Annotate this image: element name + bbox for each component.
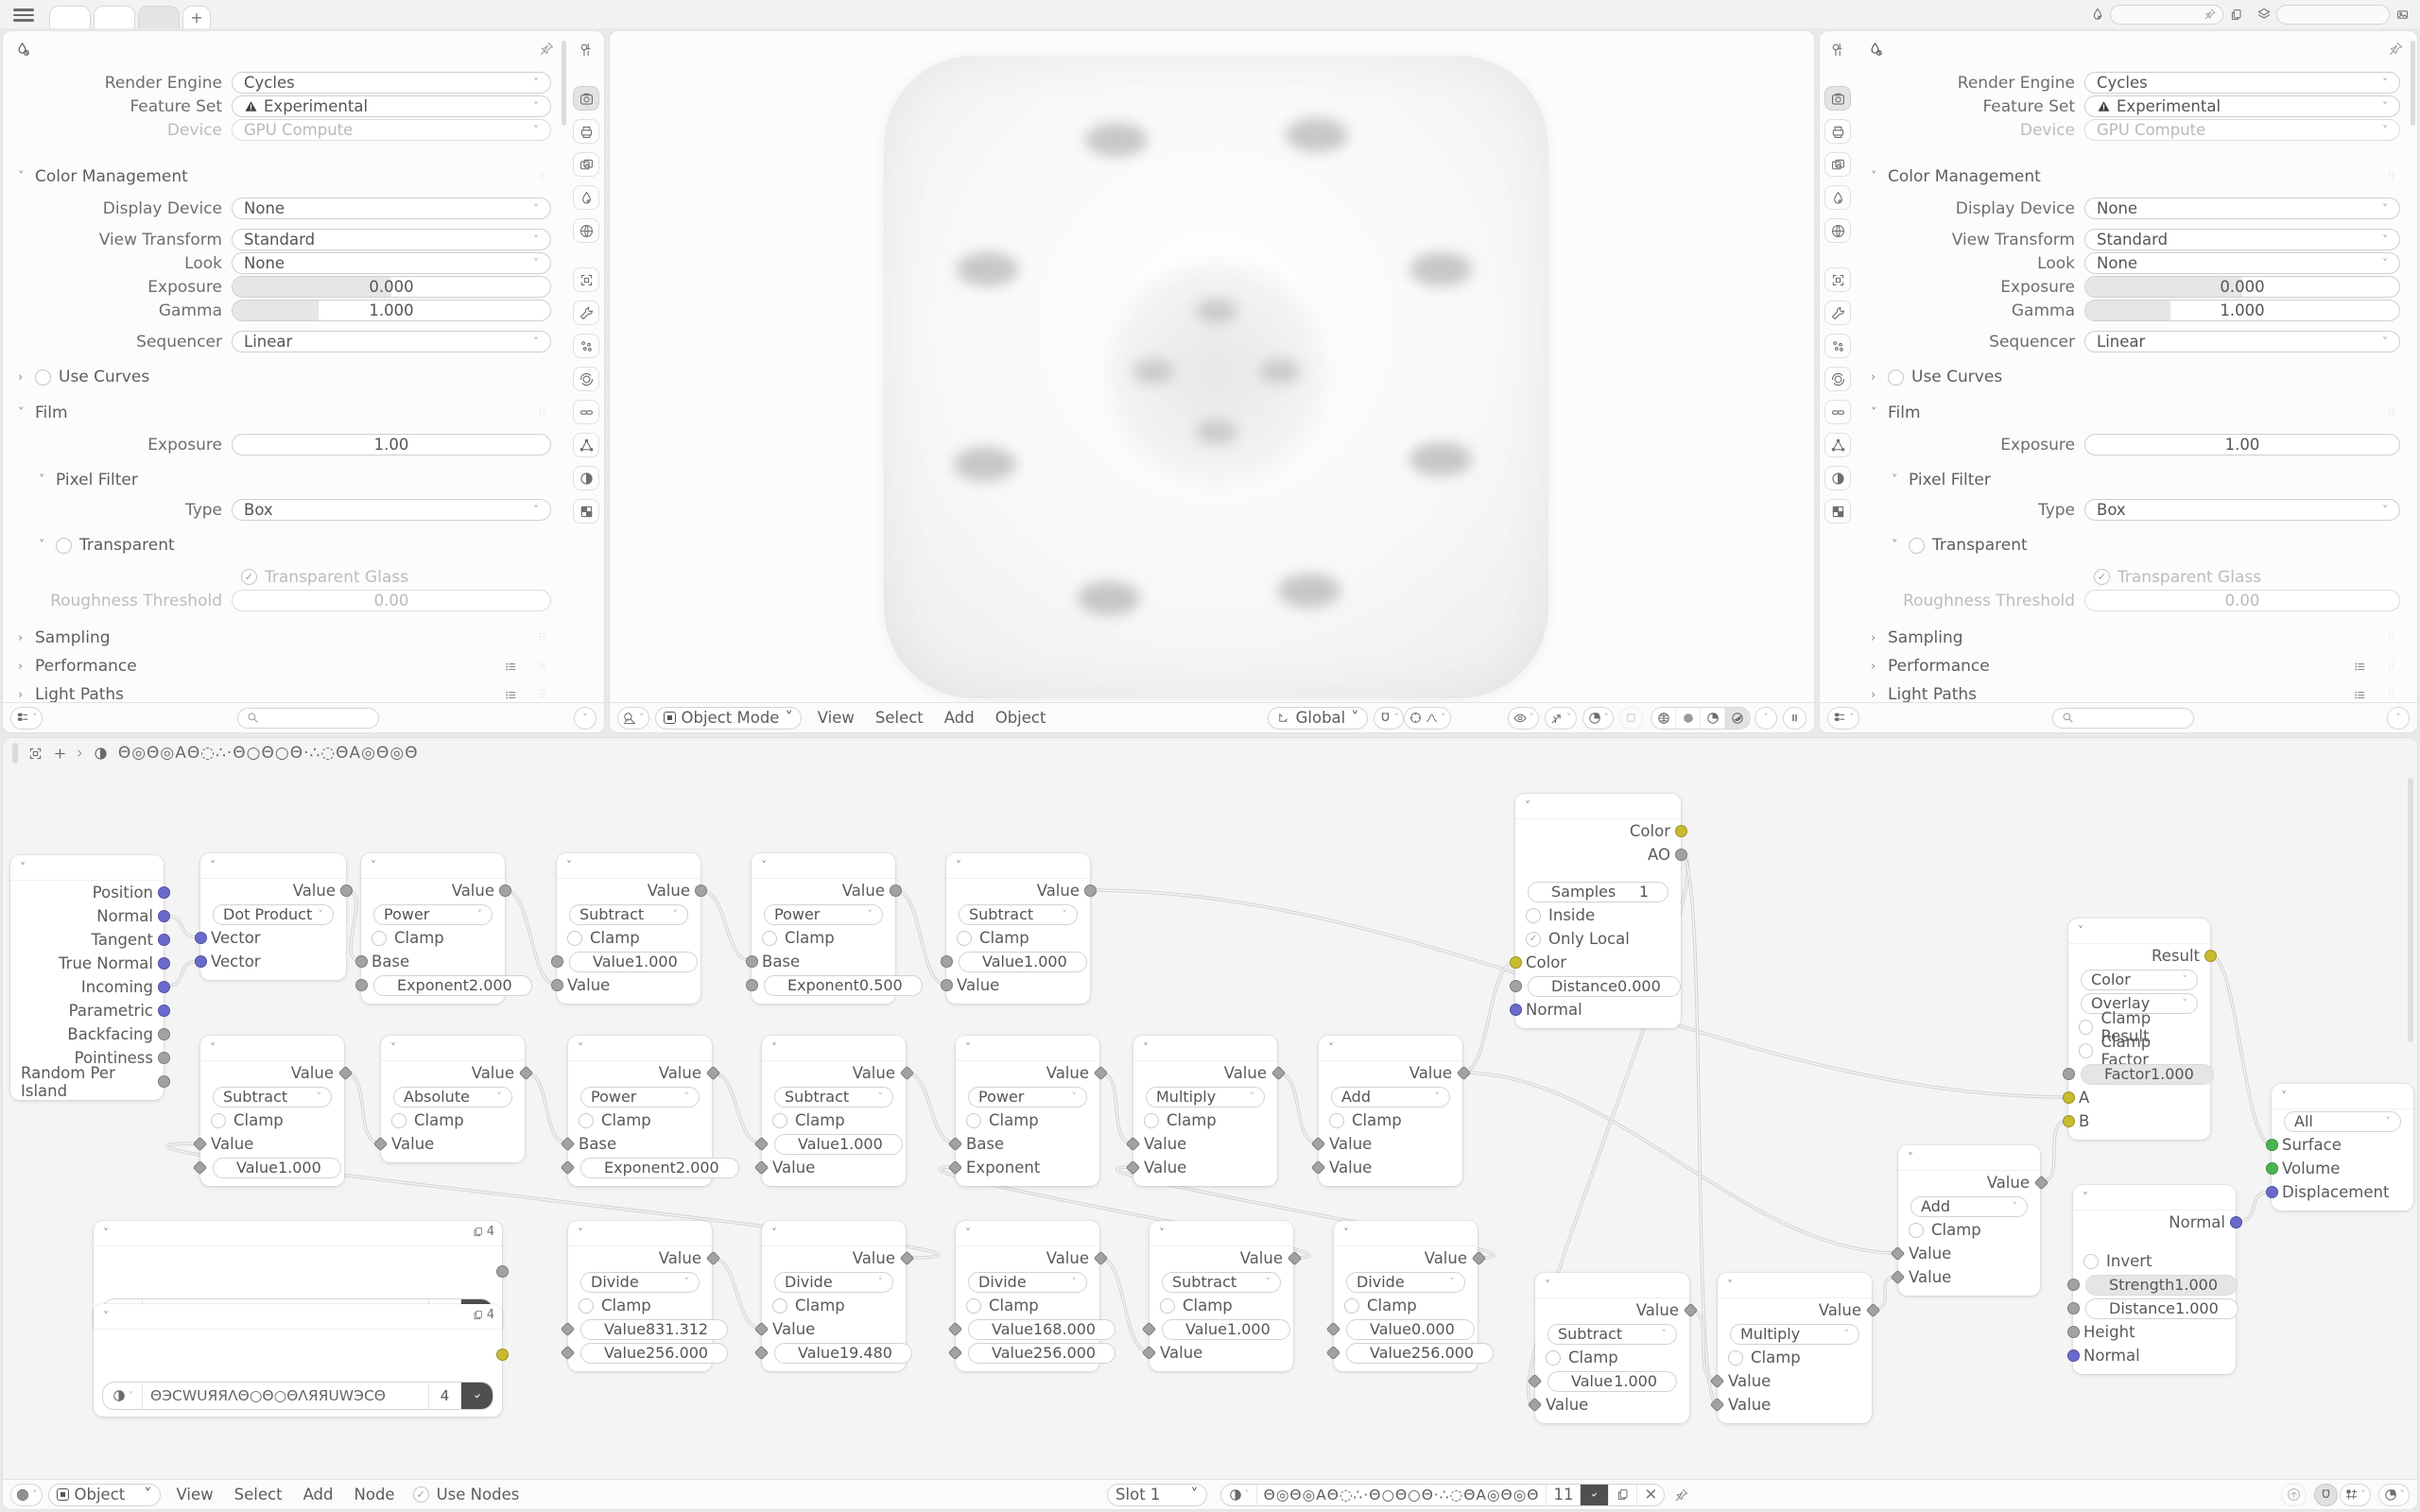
menu-add[interactable]: Add (934, 709, 985, 727)
node-mix[interactable]: ˅ResultColor˅Overlay˅Clamp ResultClamp F… (2068, 919, 2210, 1140)
number-field[interactable]: Value1.000 (959, 952, 1087, 972)
enum-dropdown[interactable]: Add˅ (1910, 1196, 2028, 1217)
chevron-down-icon[interactable]: ˅ (1525, 799, 1530, 813)
socket-out[interactable] (158, 934, 170, 946)
node-tex2[interactable]: ˅4˅ΘЭCWUЯЯΛΘ○Θ○ΘΛЯЯUWЭCΘ4 (94, 1304, 502, 1417)
socket-out[interactable] (2230, 1216, 2242, 1228)
socket-out[interactable] (158, 981, 170, 993)
enum-dropdown[interactable]: Multiply˅ (1146, 1087, 1265, 1108)
properties-tab-tool[interactable] (573, 37, 599, 61)
scene-name-field[interactable] (2110, 5, 2223, 25)
properties-tab-particles[interactable] (1824, 334, 1851, 358)
socket-in[interactable] (195, 955, 207, 968)
node-div3[interactable]: ˅ValueDivide˅ClampValue168.000Value256.0… (956, 1221, 1099, 1371)
menu-select[interactable]: Select (865, 709, 934, 727)
orientation-dropdown[interactable]: Global˅ (1268, 707, 1368, 730)
checkbox[interactable] (957, 931, 972, 946)
editor-type-switcher[interactable]: ˅ (617, 707, 649, 730)
properties-tab-output[interactable] (573, 119, 599, 144)
node-sub4[interactable]: ˅ValueSubtract˅ClampValue1.000Value (762, 1036, 906, 1186)
check-transparent-glass[interactable]: Transparent Glass (3, 565, 568, 589)
node-header[interactable]: ˅ (752, 853, 895, 879)
socket-out[interactable] (890, 885, 902, 897)
checkbox[interactable] (241, 569, 257, 585)
properties-tab-world[interactable] (573, 218, 599, 243)
node-add2[interactable]: ˅ValueAdd˅ClampValueValue (1898, 1145, 2040, 1296)
section-use-curves[interactable]: ›Use Curves (1856, 365, 2417, 389)
visibility-dropdown[interactable]: ˅ (1508, 707, 1540, 730)
properties-tab-physics[interactable] (573, 367, 599, 391)
properties-tab-constraint[interactable] (573, 400, 599, 424)
number-field[interactable]: Exponent2.000 (580, 1158, 739, 1178)
section-light-paths[interactable]: ›Light Paths⠿ (3, 682, 568, 702)
properties-tab-particles[interactable] (573, 334, 599, 358)
socket-out[interactable] (496, 1349, 509, 1361)
properties-tab-material[interactable] (573, 466, 599, 490)
node-header[interactable]: ˅ (956, 1036, 1099, 1061)
socket-in[interactable] (2067, 1326, 2080, 1338)
checkbox[interactable] (762, 931, 777, 946)
overlays-dropdown[interactable]: ˅ (2378, 1484, 2411, 1506)
section-film[interactable]: ˅Film⠿ (3, 401, 568, 425)
material-name-field[interactable]: Θ◎Θ◎AΘ◌∴·Θ○Θ○Θ·∴◌ΘA◎Θ◎Θ (1257, 1485, 1547, 1505)
chevron-down-icon[interactable]: ˅ (371, 859, 376, 872)
chevron-down-icon[interactable]: ˅ (965, 1227, 971, 1240)
viewport-canvas[interactable] (610, 31, 1814, 702)
section-pixel-filter[interactable]: ˅Pixel Filter (3, 468, 568, 492)
number-field[interactable]: Value256.000 (968, 1343, 1115, 1364)
socket-in[interactable] (2266, 1162, 2278, 1175)
checkbox[interactable] (2094, 569, 2110, 585)
properties-tab-world[interactable] (1824, 218, 1851, 243)
section-light-paths[interactable]: ›Light Paths⠿ (1856, 682, 2417, 702)
node-sub2[interactable]: ˅ValueSubtract˅ClampValue1.000Value (946, 853, 1090, 1004)
value-field-exposure[interactable]: 1.00 (232, 434, 551, 455)
chevron-down-icon[interactable]: ˅ (965, 1041, 971, 1055)
properties-tab-texture[interactable] (573, 499, 599, 524)
chevron-down-icon[interactable]: ˅ (1908, 1151, 1913, 1164)
chevron-down-icon[interactable]: ˅ (578, 1041, 583, 1055)
checkbox[interactable] (1160, 1298, 1175, 1314)
socket-in[interactable] (2067, 1279, 2080, 1291)
shading-dropdown[interactable]: ˅ (1754, 707, 1777, 730)
checkbox[interactable] (211, 1113, 226, 1128)
properties-tab-object[interactable] (1824, 267, 1851, 292)
number-field[interactable]: Value1.000 (1162, 1319, 1290, 1340)
properties-tab-physics[interactable] (1824, 367, 1851, 391)
socket-out[interactable] (158, 1075, 170, 1088)
chevron-down-icon[interactable]: ˅ (1545, 1279, 1550, 1292)
dropdown-look[interactable]: None˅ (2084, 252, 2400, 274)
checkbox[interactable] (2083, 1254, 2099, 1269)
checkbox[interactable] (1728, 1350, 1743, 1366)
section-sampling[interactable]: ›Sampling⠿ (3, 626, 568, 650)
properties-tab-output[interactable] (1824, 119, 1851, 144)
value-field-gamma[interactable]: 1.000 (232, 300, 551, 321)
enum-dropdown[interactable]: Add˅ (1331, 1087, 1450, 1108)
number-field[interactable]: Strength1.000 (2085, 1275, 2238, 1296)
snap-button[interactable]: ˅ (1374, 707, 1405, 730)
enum-dropdown[interactable]: Power˅ (580, 1087, 700, 1108)
socket-out[interactable] (499, 885, 511, 897)
value-field-exposure[interactable]: 0.000 (2084, 276, 2400, 298)
pin-icon[interactable] (539, 41, 555, 57)
editor-type-switcher[interactable]: ˅ (10, 707, 43, 730)
section-performance[interactable]: ›Performance⠿ (3, 654, 568, 679)
chevron-down-icon[interactable]: ˅ (1143, 1041, 1149, 1055)
socket-out[interactable] (1084, 885, 1097, 897)
socket-out[interactable] (340, 885, 353, 897)
socket-in[interactable] (2063, 1091, 2075, 1104)
new-image-icon[interactable] (2392, 5, 2412, 25)
presets-icon[interactable] (503, 659, 519, 675)
pin-icon[interactable] (2388, 41, 2404, 57)
properties-tab-texture[interactable] (1824, 499, 1851, 524)
node-div2[interactable]: ˅ValueDivide˅ClampValueValue19.480 (762, 1221, 906, 1371)
enum-dropdown[interactable]: Color˅ (2081, 970, 2198, 990)
dropdown-view-transform[interactable]: Standard˅ (2084, 229, 2400, 250)
chevron-down-icon[interactable]: ˅ (2281, 1090, 2287, 1103)
pause-render-button[interactable] (1783, 707, 1806, 730)
node-div1[interactable]: ˅ValueDivide˅ClampValue831.312Value256.0… (568, 1221, 712, 1371)
chevron-down-icon[interactable]: ˅ (578, 1227, 583, 1240)
enum-dropdown[interactable]: Absolute˅ (393, 1087, 512, 1108)
checkbox[interactable] (372, 931, 387, 946)
socket-out[interactable] (496, 1265, 509, 1278)
enum-dropdown[interactable]: All˅ (2284, 1111, 2401, 1132)
scrollbar[interactable] (562, 41, 566, 126)
material-user-count[interactable]: 11 (1547, 1485, 1581, 1505)
scrollbar[interactable] (12, 743, 18, 764)
presets-icon[interactable] (2352, 659, 2368, 675)
number-field[interactable]: Value1.000 (213, 1158, 341, 1178)
enum-dropdown[interactable]: Subtract˅ (569, 904, 688, 925)
value-field-roughness-threshold[interactable]: 0.00 (232, 590, 551, 611)
node-header[interactable]: ˅ (361, 853, 505, 879)
enum-dropdown[interactable]: Divide˅ (968, 1272, 1087, 1293)
fake-user-shield-icon[interactable] (460, 1383, 493, 1409)
node-header[interactable]: ˅ (568, 1036, 712, 1061)
socket-out[interactable] (2204, 950, 2217, 962)
checkbox[interactable] (56, 538, 72, 554)
gizmo-dropdown[interactable]: ˅ (1545, 707, 1577, 730)
section-transparent[interactable]: ˅Transparent (1856, 533, 2417, 558)
number-field[interactable]: Value19.480 (774, 1343, 912, 1364)
properties-tab-scene[interactable] (1824, 185, 1851, 210)
chevron-down-icon[interactable]: ˅ (1727, 1279, 1733, 1292)
chevron-down-icon[interactable]: ˅ (390, 1041, 396, 1055)
plus-icon[interactable] (53, 747, 67, 761)
chevron-down-icon[interactable]: ˅ (210, 1041, 216, 1055)
new-workspace-button[interactable]: + (182, 6, 211, 28)
checkbox[interactable] (579, 1298, 594, 1314)
number-field[interactable]: Value256.000 (580, 1343, 728, 1364)
section-pixel-filter[interactable]: ˅Pixel Filter (1856, 468, 2417, 492)
number-field[interactable]: Distance0.000 (1528, 976, 1681, 997)
chevron-down-icon[interactable]: ˅ (2078, 924, 2083, 937)
chevron-down-icon[interactable]: ˅ (1328, 1041, 1334, 1055)
section-color-management[interactable]: ˅Color Management⠿ (3, 164, 568, 189)
snap-target-dropdown[interactable]: ˅ (2340, 1484, 2371, 1506)
workspace-tab[interactable] (49, 6, 91, 28)
view-layer-icon[interactable] (2254, 5, 2274, 25)
properties-tab-render[interactable] (1824, 86, 1851, 111)
dropdown-view-transform[interactable]: Standard˅ (232, 229, 551, 250)
number-field[interactable]: Exponent2.000 (373, 975, 532, 996)
chevron-down-icon[interactable]: ˅ (2083, 1191, 2088, 1204)
node-header[interactable]: ˅ (1535, 1273, 1689, 1298)
node-pow3[interactable]: ˅ValuePower˅ClampBaseExponent2.000 (568, 1036, 712, 1186)
socket-out[interactable] (695, 885, 707, 897)
shading-material[interactable] (1701, 708, 1725, 729)
checkbox[interactable] (966, 1298, 981, 1314)
user-count[interactable]: 4 (428, 1383, 460, 1409)
properties-tab-material[interactable] (1824, 466, 1851, 490)
section-performance[interactable]: ›Performance⠿ (1856, 654, 2417, 679)
socket-in[interactable] (2063, 1068, 2075, 1080)
object-type-dropdown[interactable]: Object˅ (48, 1484, 161, 1506)
slot-dropdown[interactable]: Slot 1˅ (1107, 1484, 1207, 1506)
number-field[interactable]: Value1.000 (1547, 1371, 1677, 1392)
shading-rendered[interactable] (1725, 708, 1750, 729)
datablock-name[interactable]: ΘЭCWUЯЯΛΘ○Θ○ΘΛЯЯUWЭCΘ (143, 1387, 428, 1404)
node-header[interactable]: ˅4 (94, 1304, 502, 1330)
dropdown-look[interactable]: None˅ (232, 252, 551, 274)
node-header[interactable]: ˅ (1718, 1273, 1872, 1298)
enum-dropdown[interactable]: Multiply˅ (1730, 1324, 1859, 1345)
socket-in[interactable] (941, 979, 953, 991)
enum-dropdown[interactable]: Power˅ (968, 1087, 1087, 1108)
enum-dropdown[interactable]: Power˅ (373, 904, 493, 925)
socket-in[interactable] (551, 955, 563, 968)
chevron-down-icon[interactable]: ˅ (103, 1227, 109, 1240)
checkbox[interactable] (579, 1113, 594, 1128)
check-transparent-glass[interactable]: Transparent Glass (1856, 565, 2417, 589)
checkbox[interactable] (1344, 1298, 1359, 1314)
use-nodes-toggle[interactable]: Use Nodes (413, 1486, 520, 1503)
chevron-down-icon[interactable]: ˅ (1343, 1227, 1349, 1240)
dropdown-render-engine[interactable]: Cycles˅ (232, 72, 551, 94)
socket-in[interactable] (746, 955, 758, 968)
node-header[interactable]: ˅ (2272, 1084, 2413, 1109)
node-geo[interactable]: ˅PositionNormalTangentTrue NormalIncomin… (10, 855, 164, 1100)
checkbox[interactable] (772, 1113, 787, 1128)
properties-tab-viewlayer[interactable] (573, 152, 599, 177)
node-header[interactable]: ˅ (381, 1036, 525, 1061)
node-header[interactable]: ˅ (1515, 794, 1681, 819)
value-field-roughness-threshold[interactable]: 0.00 (2084, 590, 2400, 611)
socket-in[interactable] (2067, 1349, 2080, 1362)
node-mul1[interactable]: ˅ValueMultiply˅ClampValueValue (1133, 1036, 1277, 1186)
number-field[interactable]: Factor1.000 (2081, 1064, 2214, 1085)
node-sub1[interactable]: ˅ValueSubtract˅ClampValue1.000Value (557, 853, 700, 1004)
node-mul2[interactable]: ˅ValueMultiply˅ClampValueValue (1718, 1273, 1872, 1423)
socket-in[interactable] (2067, 1302, 2080, 1314)
node-header[interactable]: ˅4 (94, 1221, 502, 1246)
node-div4[interactable]: ˅ValueDivide˅ClampValue0.000Value256.000 (1334, 1221, 1478, 1371)
enum-dropdown[interactable]: Subtract˅ (959, 904, 1078, 925)
enum-dropdown[interactable]: Dot Product˅ (213, 904, 334, 925)
enum-dropdown[interactable]: Subtract˅ (774, 1087, 893, 1108)
node-vmath[interactable]: ˅ValueDot Product˅VectorVector (200, 853, 346, 980)
checkbox[interactable] (772, 1298, 787, 1314)
chevron-down-icon[interactable]: ˅ (771, 1041, 777, 1055)
socket-in[interactable] (746, 979, 758, 991)
properties-tab-scene[interactable] (573, 185, 599, 210)
checkbox[interactable] (1546, 1350, 1561, 1366)
node-sub6[interactable]: ˅ValueSubtract˅ClampValue1.000Value (1535, 1273, 1689, 1423)
chevron-down-icon[interactable]: ˅ (956, 859, 961, 872)
overlays-dropdown[interactable]: ˅ (1582, 707, 1615, 730)
socket-out[interactable] (158, 1005, 170, 1017)
node-header[interactable]: ˅ (1319, 1036, 1462, 1061)
chevron-down-icon[interactable]: ˅ (566, 859, 572, 872)
properties-tab-data[interactable] (573, 433, 599, 457)
properties-tab-tool[interactable] (1824, 37, 1851, 61)
properties-tab-render[interactable] (573, 86, 599, 111)
dropdown-feature-set[interactable]: Experimental˅ (2084, 95, 2400, 117)
number-field[interactable]: Value1.000 (569, 952, 698, 972)
shading-solid[interactable] (1676, 708, 1701, 729)
properties-tab-constraint[interactable] (1824, 400, 1851, 424)
number-field[interactable]: Exponent0.500 (764, 975, 923, 996)
section-sampling[interactable]: ›Sampling⠿ (1856, 626, 2417, 650)
checkbox[interactable] (413, 1486, 429, 1503)
socket-in[interactable] (941, 955, 953, 968)
dropdown-display-device[interactable]: None˅ (232, 198, 551, 219)
copy-scene-icon[interactable] (2225, 5, 2246, 25)
properties-tab-modifier[interactable] (573, 301, 599, 325)
filter-dropdown-button[interactable]: ˅ (574, 707, 596, 730)
dropdown-sequencer[interactable]: Linear˅ (232, 331, 551, 352)
chevron-down-icon[interactable]: ˅ (771, 1227, 777, 1240)
checkbox[interactable] (1526, 908, 1541, 923)
properties-tab-object[interactable] (573, 267, 599, 292)
value-field-exposure[interactable]: 1.00 (2084, 434, 2400, 455)
node-header[interactable]: ˅ (1334, 1221, 1478, 1246)
socket-in[interactable] (2266, 1186, 2278, 1198)
app-menu-icon[interactable] (11, 6, 36, 25)
number-field[interactable]: Value1.000 (774, 1134, 903, 1155)
section-color-management[interactable]: ˅Color Management⠿ (1856, 164, 2417, 189)
editor-type-switcher[interactable]: ˅ (10, 1484, 43, 1506)
section-film[interactable]: ˅Film⠿ (1856, 401, 2417, 425)
node-header[interactable]: ˅ (1149, 1221, 1293, 1246)
view-layer-field[interactable] (2276, 5, 2390, 25)
mode-dropdown[interactable]: Object Mode˅ (655, 707, 802, 730)
section-transparent[interactable]: ˅Transparent (3, 533, 568, 558)
node-header[interactable]: ˅ (557, 853, 700, 879)
dropdown-type[interactable]: Box˅ (232, 499, 551, 521)
number-field[interactable]: Samples1 (1528, 882, 1668, 902)
enum-dropdown[interactable]: Subtract˅ (1162, 1272, 1281, 1293)
checkbox[interactable] (2079, 1020, 2093, 1035)
checkbox[interactable] (1144, 1113, 1159, 1128)
search-input[interactable] (237, 708, 379, 729)
checkbox[interactable] (1888, 369, 1904, 386)
editor-type-switcher[interactable]: ˅ (1827, 707, 1859, 730)
menu-select[interactable]: Select (224, 1486, 293, 1503)
datablock-selector[interactable]: ˅ΘЭCWUЯЯΛΘ○Θ○ΘΛЯЯUWЭCΘ4 (102, 1382, 493, 1410)
socket-out[interactable] (158, 957, 170, 970)
number-field[interactable]: Value168.000 (968, 1319, 1115, 1340)
shading-wireframe[interactable] (1651, 708, 1676, 729)
socket-in[interactable] (2266, 1139, 2278, 1151)
node-pow4[interactable]: ˅ValuePower˅ClampBaseExponent (956, 1036, 1099, 1186)
menu-view[interactable]: View (166, 1486, 224, 1503)
dropdown-type[interactable]: Box˅ (2084, 499, 2400, 521)
socket-out[interactable] (158, 1028, 170, 1040)
properties-tab-viewlayer[interactable] (1824, 152, 1851, 177)
node-header[interactable]: ˅ (2073, 1185, 2236, 1211)
checkbox[interactable] (1909, 1223, 1924, 1238)
socket-in[interactable] (1510, 956, 1522, 969)
socket-out[interactable] (158, 910, 170, 922)
checkbox[interactable] (2079, 1043, 2093, 1058)
node-header[interactable]: ˅ (762, 1221, 906, 1246)
checkbox[interactable] (966, 1113, 981, 1128)
enum-dropdown[interactable]: Divide˅ (774, 1272, 893, 1293)
menu-node[interactable]: Node (344, 1486, 406, 1503)
socket-in[interactable] (1510, 980, 1522, 992)
socket-in[interactable] (195, 932, 207, 944)
node-header[interactable]: ˅ (2068, 919, 2210, 944)
node-header[interactable]: ˅ (1898, 1145, 2040, 1171)
node-pow2[interactable]: ˅ValuePower˅ClampBaseExponent0.500 (752, 853, 895, 1004)
node-header[interactable]: ˅ (946, 853, 1090, 879)
enum-dropdown[interactable]: Power˅ (764, 904, 883, 925)
node-bump[interactable]: ˅NormalInvertStrength1.000Distance1.000H… (2073, 1185, 2236, 1374)
proportional-edit-button[interactable]: ˅ (1404, 707, 1451, 730)
menu-view[interactable]: View (807, 709, 865, 727)
socket-out[interactable] (1675, 849, 1687, 861)
search-input[interactable] (2052, 708, 2194, 729)
workspace-tab[interactable] (94, 6, 135, 28)
chevron-down-icon[interactable]: ˅ (1159, 1227, 1165, 1240)
number-field[interactable]: Value0.000 (1346, 1319, 1475, 1340)
dropdown-device[interactable]: GPU Compute˅ (2084, 119, 2400, 141)
number-field[interactable]: Distance1.000 (2085, 1298, 2238, 1319)
node-header[interactable]: ˅ (200, 853, 346, 879)
node-sub3[interactable]: ˅ValueSubtract˅ClampValueValue1.000 (200, 1036, 344, 1186)
xray-toggle[interactable] (1619, 707, 1643, 730)
socket-out[interactable] (158, 886, 170, 899)
node-header[interactable]: ˅ (200, 1036, 344, 1061)
filter-dropdown-button[interactable]: ˅ (2387, 707, 2410, 730)
checkbox[interactable] (35, 369, 51, 386)
number-field[interactable]: Value831.312 (580, 1319, 728, 1340)
dropdown-render-engine[interactable]: Cycles˅ (2084, 72, 2400, 94)
checkbox[interactable] (567, 931, 582, 946)
socket-out[interactable] (1675, 825, 1687, 837)
chevron-down-icon[interactable]: ˅ (761, 859, 767, 872)
checkbox[interactable] (391, 1113, 406, 1128)
chevron-down-icon[interactable]: ˅ (20, 861, 26, 874)
material-icon[interactable]: ˅ (103, 1383, 143, 1409)
menu-add[interactable]: Add (293, 1486, 344, 1503)
value-field-gamma[interactable]: 1.000 (2084, 300, 2400, 321)
dropdown-device[interactable]: GPU Compute˅ (232, 119, 551, 141)
unlink-icon[interactable]: ✕ (1637, 1485, 1664, 1505)
scrollbar[interactable] (2411, 41, 2415, 126)
node-ao[interactable]: ˅ColorAOSamples1InsideOnly LocalColorDis… (1515, 794, 1681, 1028)
node-abs1[interactable]: ˅ValueAbsolute˅ClampValue (381, 1036, 525, 1162)
checkbox[interactable] (1909, 538, 1925, 554)
node-add1[interactable]: ˅ValueAdd˅ClampValueValue (1319, 1036, 1462, 1186)
value-field-exposure[interactable]: 0.000 (232, 276, 551, 298)
go-to-parent-button[interactable] (2281, 1484, 2307, 1506)
presets-icon[interactable] (503, 687, 519, 703)
